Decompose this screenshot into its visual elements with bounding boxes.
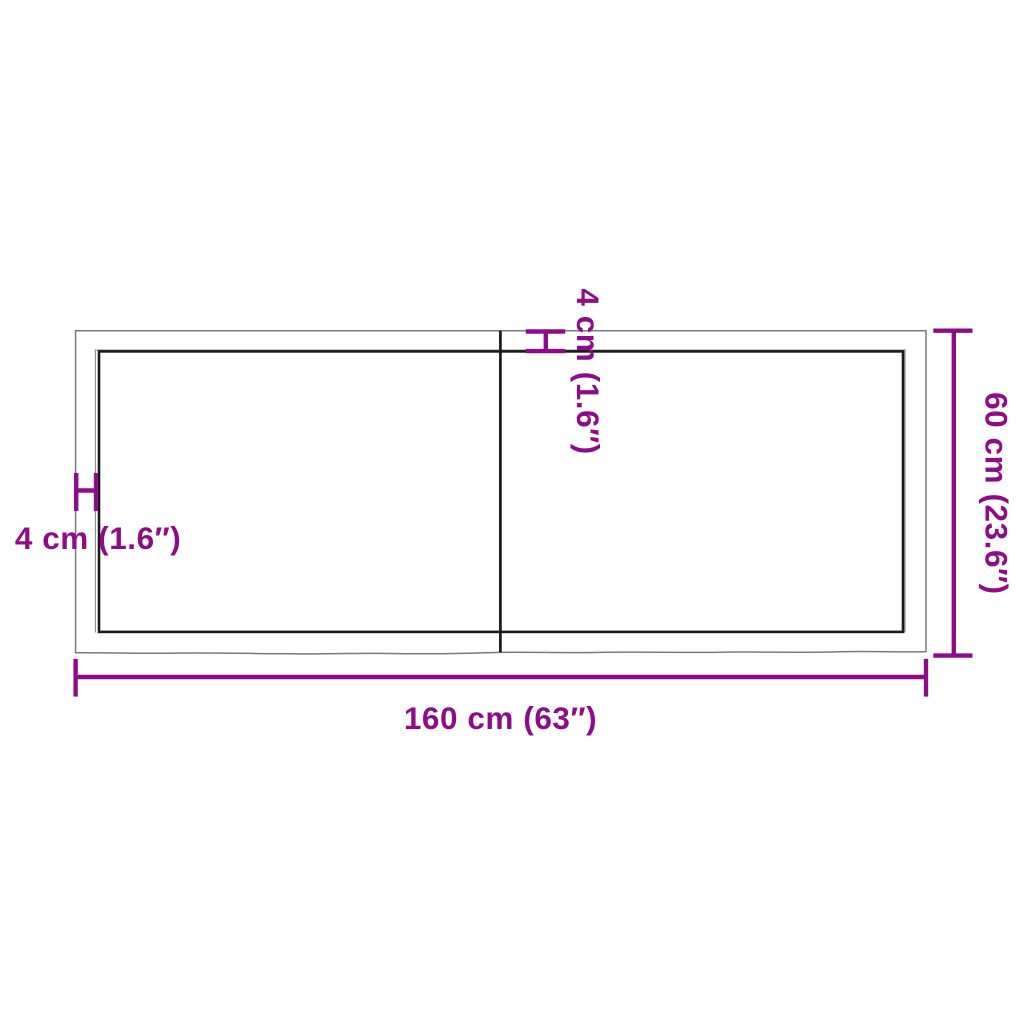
svg-text:4 cm (1.6″): 4 cm (1.6″)	[15, 520, 181, 556]
svg-text:160 cm (63″): 160 cm (63″)	[404, 700, 597, 736]
svg-text:60 cm (23.6″): 60 cm (23.6″)	[978, 392, 1014, 595]
svg-text:4 cm (1.6″): 4 cm (1.6″)	[570, 288, 606, 454]
